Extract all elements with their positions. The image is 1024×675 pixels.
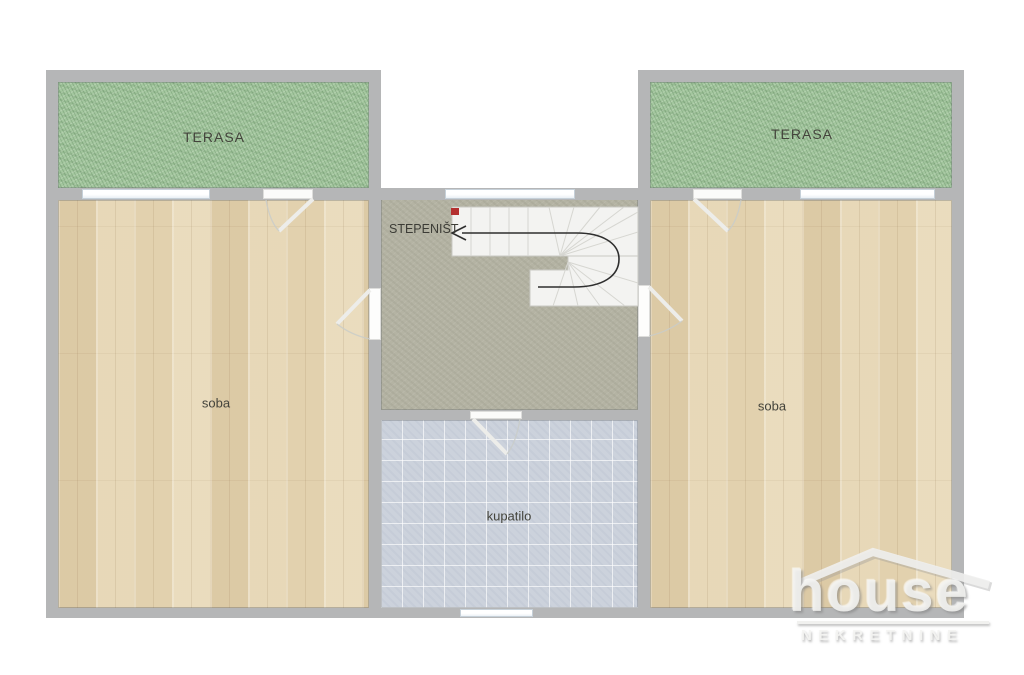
room-right-floor	[650, 200, 952, 608]
door-terrace-right	[693, 189, 742, 199]
wall-outer-left	[46, 70, 58, 618]
window-staircase-top	[445, 189, 575, 199]
room-left-label: soba	[202, 396, 230, 411]
wall-middle-left	[369, 70, 381, 618]
wall-terrace-right-top	[638, 70, 964, 82]
room-right-label: soba	[758, 399, 786, 414]
watermark-divider	[797, 621, 989, 624]
wall-terrace-left-top	[46, 70, 381, 82]
terrace-left-label: TERASA	[183, 129, 245, 145]
door-room-left	[369, 288, 381, 340]
bathroom-label: kupatilo	[487, 509, 532, 524]
door-room-right	[638, 285, 650, 337]
terrace-right-label: TERASA	[771, 126, 833, 142]
window-terrace-right	[800, 189, 935, 199]
watermark-subtitle: NEKRETNINE	[801, 627, 964, 644]
staircase-label: STEPENIŠT	[389, 222, 458, 236]
floor-plan: TERASA TERASA soba soba kupatilo STEPENI…	[0, 0, 1024, 675]
door-bathroom	[470, 411, 522, 419]
door-terrace-left	[263, 189, 313, 199]
wall-outer-right	[952, 70, 964, 618]
window-terrace-left	[82, 189, 210, 199]
wall-middle-right	[638, 70, 650, 618]
window-bathroom	[460, 609, 533, 617]
